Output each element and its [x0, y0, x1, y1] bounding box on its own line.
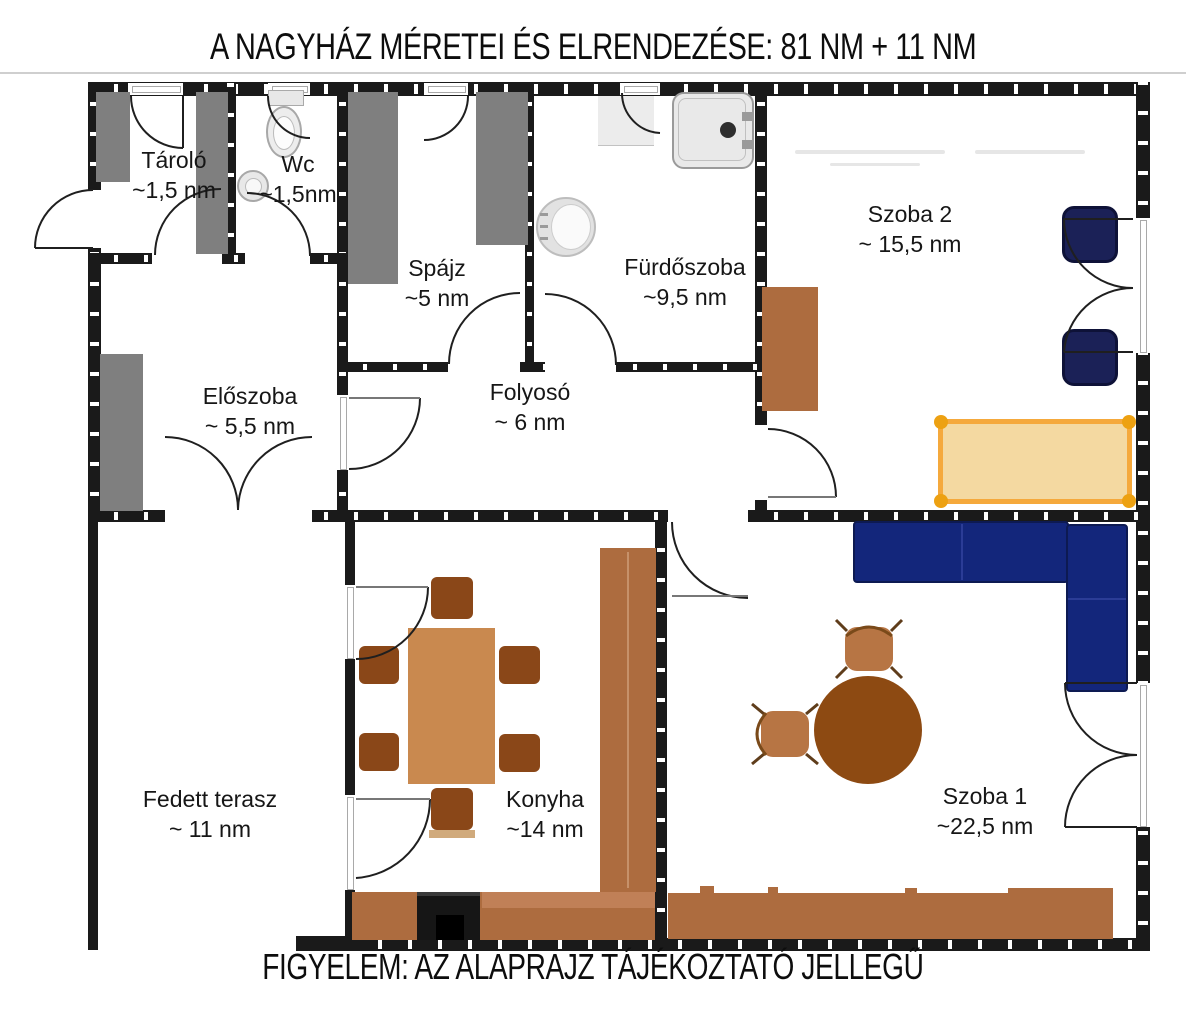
door-arc — [356, 799, 430, 878]
wall-terrace-west — [88, 522, 98, 950]
room-area: ~1,5 nm — [118, 176, 230, 206]
door-arc — [768, 429, 836, 497]
window-frame — [624, 86, 658, 93]
door-opening-west-exterior — [88, 190, 101, 248]
door-opening-szoba1 — [668, 510, 748, 522]
room-area: ~ 15,5 nm — [828, 230, 992, 260]
title-divider — [0, 72, 1186, 74]
shower-drain-icon — [720, 122, 736, 138]
toilet-tank — [268, 90, 304, 106]
window-frame — [340, 397, 347, 470]
room-label-szoba1: Szoba 1 ~22,5 nm — [903, 782, 1067, 842]
door-opening-furdoszoba — [545, 362, 616, 372]
door-arc — [131, 96, 183, 148]
room-area: ~ 6 nm — [460, 408, 600, 438]
sofa-szoba1-right — [1066, 524, 1128, 692]
room-label-konyha: Konyha ~14 nm — [475, 785, 615, 845]
sideboard-detail — [905, 888, 917, 894]
room-name: Fürdőszoba — [603, 253, 767, 283]
stove-oven-door — [436, 915, 464, 940]
window-frame — [1140, 220, 1147, 353]
toilet-bowl-inner — [273, 116, 295, 150]
room-label-terasz: Fedett terasz ~ 11 nm — [118, 785, 302, 845]
door-opening-spajz — [448, 362, 520, 372]
room-label-folyoso: Folyosó ~ 6 nm — [460, 378, 600, 438]
door-opening-eloszoba-terasz — [165, 510, 312, 522]
chair-szoba1-top — [845, 627, 893, 671]
page-title-text: A NAGYHÁZ MÉRETEI ÉS ELRENDEZÉSE: 81 NM … — [210, 26, 976, 68]
wardrobe-eloszoba — [100, 354, 143, 511]
door-arc — [424, 96, 468, 140]
door-arc — [672, 522, 748, 598]
washer-control — [540, 225, 548, 228]
room-name: Tároló — [118, 146, 230, 176]
room-name: Fedett terasz — [118, 785, 302, 815]
room-label-spajz: Spájz ~5 nm — [378, 254, 496, 314]
door-opening-wc — [245, 253, 310, 264]
sideboard-detail — [700, 886, 714, 894]
room-label-szoba2: Szoba 2 ~ 15,5 nm — [828, 200, 992, 260]
watermark-remnant — [830, 163, 920, 166]
window-frame — [132, 86, 181, 93]
shower-cabin — [598, 96, 654, 146]
window-frame — [1140, 685, 1147, 827]
kitchen-counter-seam — [627, 552, 629, 888]
room-area: ~22,5 nm — [903, 812, 1067, 842]
sofa-cushion-seam — [1068, 598, 1126, 600]
window-frame — [347, 587, 354, 659]
room-area: ~9,5 nm — [603, 283, 767, 313]
shelf-spajz-right — [476, 92, 528, 245]
room-area: ~ 5,5 nm — [180, 412, 320, 442]
bed-szoba2 — [938, 419, 1132, 504]
window-frame — [347, 797, 354, 890]
bed-corner-post — [934, 494, 948, 508]
window-frame — [428, 86, 466, 93]
door-opening-szoba2 — [755, 425, 767, 500]
door-arc — [165, 437, 238, 510]
watermark-remnant — [795, 150, 945, 154]
armchair-szoba2-bottom — [1062, 329, 1118, 386]
room-label-furdoszoba: Fürdőszoba ~9,5 nm — [603, 253, 767, 313]
room-area: ~5 nm — [378, 284, 496, 314]
sofa-cushion-seam — [961, 524, 963, 580]
dining-chair-top — [431, 577, 473, 619]
room-area: ~1,5nm — [242, 180, 354, 210]
door-arc — [1065, 683, 1137, 755]
door-opening-tarolo — [152, 253, 222, 264]
sideboard-szoba1-step — [1008, 888, 1113, 939]
room-label-wc: Wc ~1,5nm — [242, 150, 354, 210]
room-label-eloszoba: Előszoba ~ 5,5 nm — [180, 382, 320, 442]
page-caption: FIGYELEM: AZ ALAPRAJZ TÁJÉKOZTATÓ JELLEG… — [0, 946, 1186, 988]
page-title: A NAGYHÁZ MÉRETEI ÉS ELRENDEZÉSE: 81 NM … — [0, 26, 1186, 68]
kitchen-counter-top-band — [482, 892, 655, 908]
door-arc — [1065, 755, 1137, 827]
wall-exterior-top — [88, 82, 1150, 96]
cabinet-szoba2 — [762, 287, 818, 411]
dining-chair-base — [429, 830, 475, 838]
room-name: Szoba 1 — [903, 782, 1067, 812]
washer-control — [540, 213, 548, 216]
dining-chair-right-2 — [499, 734, 540, 772]
shower-faucet — [742, 140, 754, 149]
dining-chair-left-2 — [359, 733, 399, 771]
door-arc — [349, 398, 420, 469]
watermark-remnant — [975, 150, 1085, 154]
door-arc — [35, 190, 93, 248]
washer-control — [540, 237, 548, 240]
shower-faucet — [742, 112, 754, 121]
sideboard-detail — [768, 887, 778, 894]
room-name: Spájz — [378, 254, 496, 284]
dining-chair-bottom — [431, 788, 473, 830]
dining-chair-left-1 — [359, 646, 399, 684]
room-name: Wc — [242, 150, 354, 180]
bed-corner-post — [934, 415, 948, 429]
floor-plan-page: A NAGYHÁZ MÉRETEI ÉS ELRENDEZÉSE: 81 NM … — [0, 0, 1186, 1023]
bed-corner-post — [1122, 415, 1136, 429]
room-name: Előszoba — [180, 382, 320, 412]
room-name: Szoba 2 — [828, 200, 992, 230]
wall-konyha-szoba1 — [655, 522, 667, 938]
dining-table — [408, 628, 495, 784]
page-caption-text: FIGYELEM: AZ ALAPRAJZ TÁJÉKOZTATÓ JELLEG… — [262, 946, 923, 988]
room-area: ~ 11 nm — [118, 815, 302, 845]
round-table-szoba1 — [814, 676, 922, 784]
room-label-tarolo: Tároló ~1,5 nm — [118, 146, 230, 206]
dining-chair-right-1 — [499, 646, 540, 684]
door-arc — [238, 437, 312, 510]
room-name: Konyha — [475, 785, 615, 815]
chair-szoba1-left — [761, 711, 809, 757]
bed-corner-post — [1122, 494, 1136, 508]
room-name: Folyosó — [460, 378, 600, 408]
washing-machine-door — [551, 204, 591, 250]
armchair-szoba2-top — [1062, 206, 1118, 263]
room-area: ~14 nm — [475, 815, 615, 845]
